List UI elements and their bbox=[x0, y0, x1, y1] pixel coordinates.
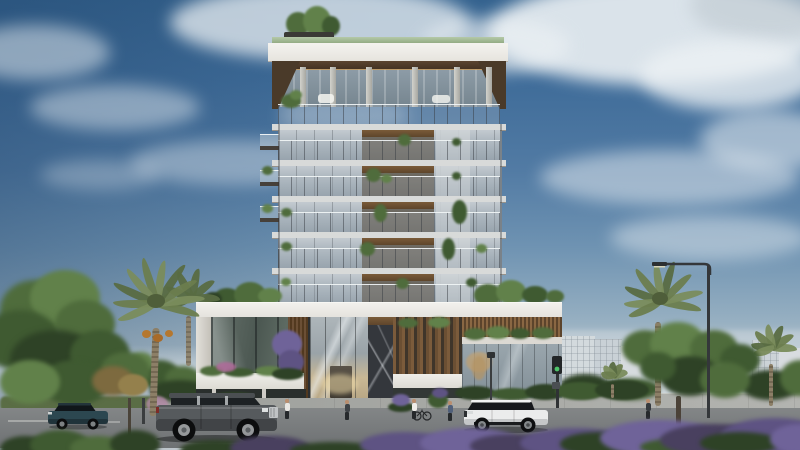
palm-trunk bbox=[611, 384, 614, 398]
floor-4 bbox=[272, 232, 506, 268]
bougainvillea-base bbox=[272, 368, 304, 380]
planter-plant bbox=[464, 328, 486, 340]
penthouse-glass bbox=[280, 66, 498, 107]
pedestrian-torso bbox=[646, 403, 651, 411]
pedestrian-legs bbox=[345, 412, 349, 420]
architectural-rendering bbox=[0, 0, 800, 450]
date-cluster bbox=[142, 330, 151, 338]
balcony-plant bbox=[281, 242, 292, 251]
column bbox=[412, 67, 418, 107]
pedestrian-head bbox=[646, 399, 650, 403]
side-balcony-slab bbox=[260, 146, 279, 150]
traffic-light-green bbox=[554, 366, 560, 372]
date-cluster bbox=[153, 334, 163, 342]
pedestrian-torso bbox=[345, 404, 350, 412]
cloud bbox=[610, 215, 800, 260]
pedestrian bbox=[447, 401, 453, 421]
foliage bbox=[0, 360, 60, 404]
side-balcony-slab bbox=[260, 182, 279, 186]
floor-3 bbox=[272, 196, 506, 232]
palm-crown-center bbox=[147, 294, 165, 308]
column bbox=[454, 67, 460, 107]
palm-trunk bbox=[186, 316, 191, 366]
pedestrian bbox=[284, 399, 290, 419]
balcony-plant bbox=[442, 238, 455, 260]
balcony-railing bbox=[278, 140, 500, 161]
pedestrian-torso bbox=[448, 405, 453, 413]
pedestrian-legs bbox=[285, 411, 289, 419]
sidewalk-planter-flowers bbox=[432, 388, 448, 398]
side-balcony-slab bbox=[260, 218, 279, 222]
shrub bbox=[700, 432, 780, 450]
bollard bbox=[142, 398, 145, 424]
palm-trunk bbox=[769, 364, 773, 406]
balcony-plant bbox=[452, 200, 467, 224]
pink-flowers bbox=[216, 362, 236, 372]
pedestrian-head bbox=[345, 400, 349, 404]
pedestrian-torso bbox=[285, 403, 290, 411]
pedestrian-legs bbox=[646, 411, 650, 419]
balcony-plant bbox=[262, 204, 273, 213]
balcony-plant bbox=[374, 204, 387, 222]
tower-edge-left bbox=[278, 124, 280, 304]
floor-2 bbox=[272, 160, 506, 196]
pedestrian-legs bbox=[448, 413, 452, 421]
marble-wall bbox=[368, 317, 393, 398]
pedestrian bbox=[344, 400, 350, 420]
cloud bbox=[640, 40, 800, 110]
traffic-light bbox=[552, 356, 564, 408]
roof-fascia bbox=[268, 43, 508, 62]
column bbox=[486, 67, 492, 107]
hedge bbox=[595, 380, 649, 400]
teal-suv bbox=[46, 400, 110, 430]
balcony-plant bbox=[396, 278, 409, 289]
soffit-glow-line bbox=[282, 69, 496, 70]
cloud bbox=[0, 25, 110, 80]
rust-tree bbox=[118, 374, 148, 396]
signal-pole bbox=[490, 358, 492, 400]
balcony-plant bbox=[360, 242, 375, 256]
cloud bbox=[30, 85, 200, 130]
date-cluster bbox=[165, 330, 173, 337]
interior-furniture bbox=[318, 94, 334, 103]
balcony-plant bbox=[381, 174, 392, 183]
balcony-plant bbox=[466, 278, 477, 287]
lamp-pole bbox=[707, 266, 710, 418]
pedestrian-head bbox=[448, 401, 452, 405]
planter-plant bbox=[486, 326, 510, 339]
tower-edge-right bbox=[500, 124, 502, 304]
screen-plant bbox=[398, 318, 418, 328]
balcony-plant bbox=[452, 138, 461, 146]
pedestrian-head bbox=[285, 399, 289, 403]
bicycle bbox=[412, 408, 432, 421]
floor-5 bbox=[272, 268, 506, 304]
cloud bbox=[40, 160, 160, 190]
palm-crown-center bbox=[652, 292, 668, 305]
balcony-railing bbox=[278, 248, 500, 269]
entrance-glow bbox=[322, 374, 358, 394]
lamp-arm bbox=[650, 260, 712, 276]
balcony-plant bbox=[452, 172, 461, 180]
balcony-plant bbox=[476, 244, 487, 253]
screen-plant bbox=[428, 317, 450, 328]
balcony-plant bbox=[398, 134, 411, 146]
pedestrian-head bbox=[412, 399, 416, 403]
column bbox=[366, 67, 372, 107]
interior-furniture bbox=[432, 95, 450, 103]
traffic-light-pole bbox=[556, 374, 559, 408]
signal-box bbox=[552, 382, 560, 389]
balcony-plant bbox=[281, 208, 292, 217]
planter-plant bbox=[510, 328, 530, 339]
floor-1 bbox=[272, 124, 506, 160]
penthouse-railing bbox=[278, 104, 500, 125]
dry-palm-plant bbox=[472, 356, 486, 380]
balcony-plant bbox=[281, 278, 291, 286]
balcony-wood-ceiling bbox=[362, 202, 434, 209]
foliage bbox=[640, 352, 676, 382]
penthouse-soffit bbox=[278, 61, 500, 69]
pedestrian bbox=[645, 399, 651, 419]
sidewalk-planter-flowers bbox=[392, 394, 410, 406]
balcony-plant bbox=[290, 90, 302, 100]
planter-plant bbox=[532, 327, 554, 339]
balcony-plant bbox=[366, 168, 381, 182]
marble-top-strip bbox=[368, 317, 393, 325]
balcony-plant bbox=[262, 166, 273, 175]
